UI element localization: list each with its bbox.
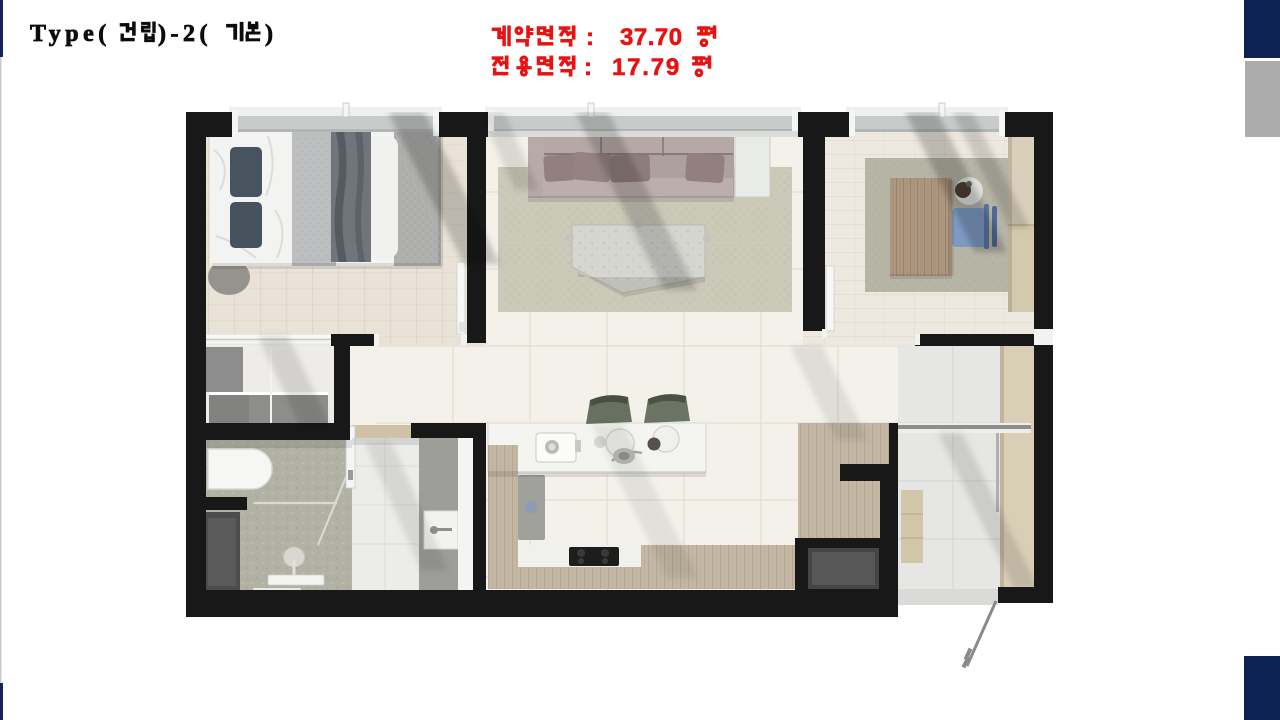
svg-text:)-2(: )-2(	[158, 21, 212, 47]
svg-text::: :	[586, 24, 594, 51]
svg-text:Type(: Type(	[30, 21, 111, 47]
svg-text:17.79: 17.79	[612, 54, 681, 81]
svg-text::: :	[584, 54, 592, 81]
svg-text:37.70: 37.70	[620, 24, 683, 51]
svg-text:): )	[265, 21, 278, 47]
